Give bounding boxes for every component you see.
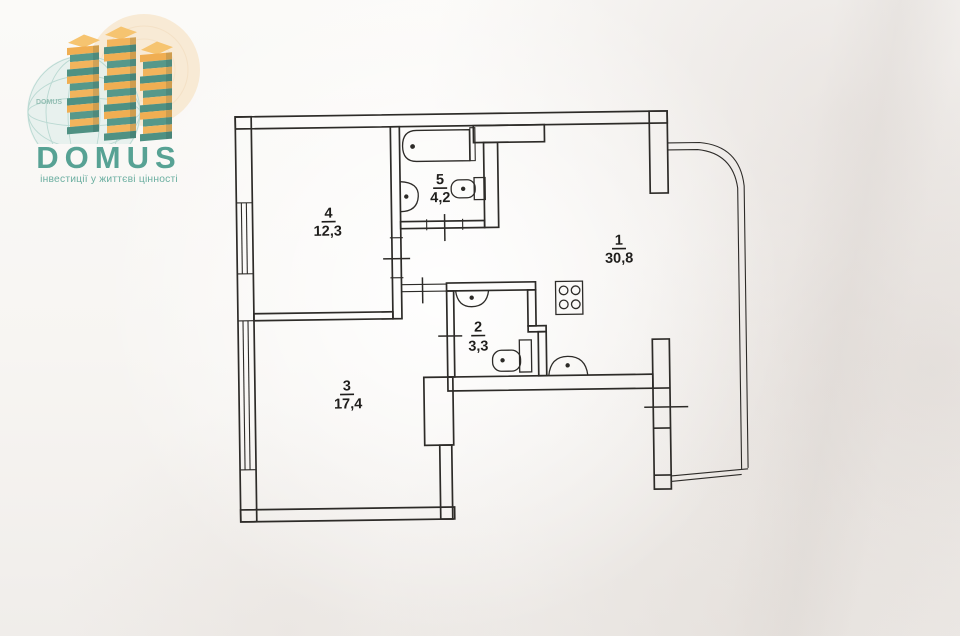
balcony-glazing-icon [641, 142, 749, 489]
room-2-area: 3,3 [468, 338, 488, 354]
bathroom-sink-icon [400, 181, 418, 211]
room-5-area: 4,2 [430, 190, 450, 206]
bathtub-icon [402, 130, 469, 162]
room-1-area: 30,8 [605, 250, 633, 266]
kitchen-sink-icon [549, 356, 588, 376]
wc-toilet-icon [492, 340, 531, 373]
wc-sink-icon [456, 290, 489, 306]
room-1-number: 1 [615, 233, 623, 249]
room-5-number: 5 [436, 172, 444, 188]
bathroom-toilet-icon [451, 177, 485, 199]
room-3-area: 17,4 [334, 396, 362, 412]
stove-icon [555, 281, 582, 314]
room-2-number: 2 [474, 320, 482, 336]
floor-plan: 1 30,8 2 3,3 3 17,4 4 12,3 5 4,2 [0, 0, 960, 636]
room-4-area: 12,3 [314, 224, 342, 240]
balcony-door-mark-icon [644, 407, 688, 408]
room-3-number: 3 [343, 378, 351, 394]
room-4-number: 4 [324, 206, 332, 222]
